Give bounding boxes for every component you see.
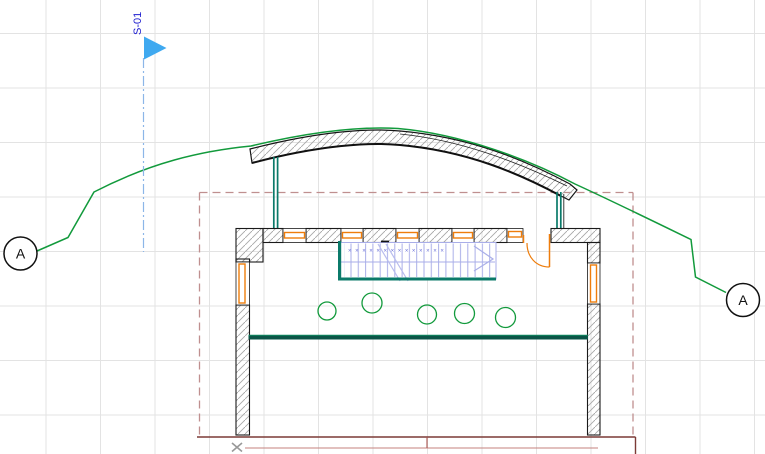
window (236, 262, 250, 305)
top-wall-segment (363, 229, 396, 243)
top-wall-segment (474, 229, 507, 243)
terrace-lines[interactable] (197, 437, 636, 454)
window (283, 229, 306, 243)
stair-black-tick-top (381, 241, 389, 243)
stair-teal-left-edge (338, 241, 341, 280)
left-wall-lower (236, 305, 250, 435)
right-wall-lower (588, 304, 601, 435)
wall-corner-top-left (236, 229, 263, 263)
column-circle (318, 302, 336, 320)
right-support-wall (557, 192, 561, 229)
interior-partition[interactable] (249, 335, 589, 339)
column-circle (418, 305, 437, 324)
section-flag-icon[interactable] (144, 37, 167, 60)
grid-bubble-right[interactable]: A (727, 284, 760, 317)
door[interactable] (524, 234, 550, 267)
window (341, 229, 363, 243)
cad-drawing-canvas[interactable]: ×××××××××××××× S-01 A A (0, 0, 765, 454)
right-wall-upper (588, 243, 601, 264)
top-wall-segment (263, 229, 283, 243)
hotspot-x-icon[interactable] (232, 443, 242, 452)
section-marker-label: S-01 (132, 12, 144, 35)
grid-bubble-left[interactable]: A (4, 237, 37, 270)
section-marker[interactable]: S-01 (132, 12, 167, 252)
grid-bubble-label: A (738, 292, 748, 308)
column-circle (362, 293, 382, 313)
column-circle (455, 304, 475, 324)
left-wall-upper (236, 259, 250, 262)
terrace-edge-line (197, 437, 636, 454)
left-support-wall (274, 157, 278, 229)
window (588, 263, 601, 304)
top-wall-segment (306, 229, 341, 243)
column-circle (496, 308, 516, 328)
window (507, 229, 523, 243)
stair-teal-bottom-edge (338, 278, 496, 281)
roof-band (250, 130, 577, 200)
grid-bubble-label: A (16, 246, 26, 262)
window (452, 229, 474, 243)
stair-tread-marks: ×××××××××××××× (348, 249, 447, 255)
curved-roof-slab[interactable] (250, 130, 577, 200)
stair[interactable]: ×××××××××××××× (338, 241, 496, 281)
top-wall-segment (419, 229, 452, 243)
top-wall-segment (551, 229, 600, 243)
column-circles[interactable] (318, 293, 516, 328)
window (396, 229, 419, 243)
door-swing-arc (527, 243, 550, 267)
